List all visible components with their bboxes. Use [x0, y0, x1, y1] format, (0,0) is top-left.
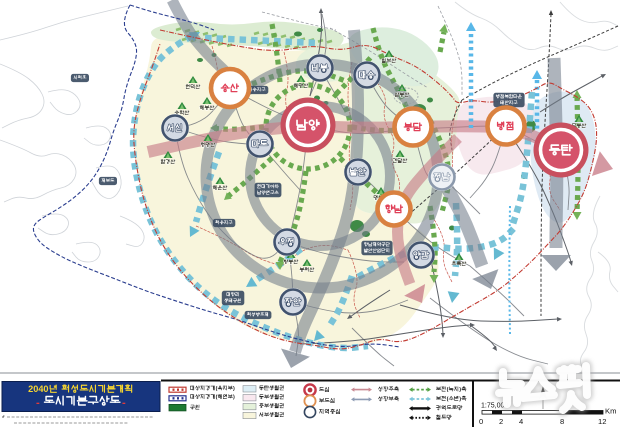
svg-text:4: 4 — [519, 417, 523, 426]
svg-text:): ) — [233, 395, 235, 401]
svg-text:): ) — [459, 396, 461, 402]
svg-text:): ) — [459, 387, 461, 393]
svg-text:(: ( — [447, 387, 449, 393]
svg-text:-: - — [36, 397, 40, 409]
svg-text:0: 0 — [479, 417, 483, 426]
svg-text:8: 8 — [560, 417, 564, 426]
svg-text:2: 2 — [499, 417, 503, 426]
svg-text:12: 12 — [598, 417, 606, 426]
svg-text:(: ( — [216, 395, 218, 401]
svg-text:): ) — [233, 386, 235, 392]
svg-text:(: ( — [216, 386, 218, 392]
svg-text:Km: Km — [605, 407, 616, 416]
svg-text:2040: 2040 — [28, 384, 48, 394]
svg-text:-: - — [122, 397, 126, 409]
svg-text:(: ( — [447, 396, 449, 402]
